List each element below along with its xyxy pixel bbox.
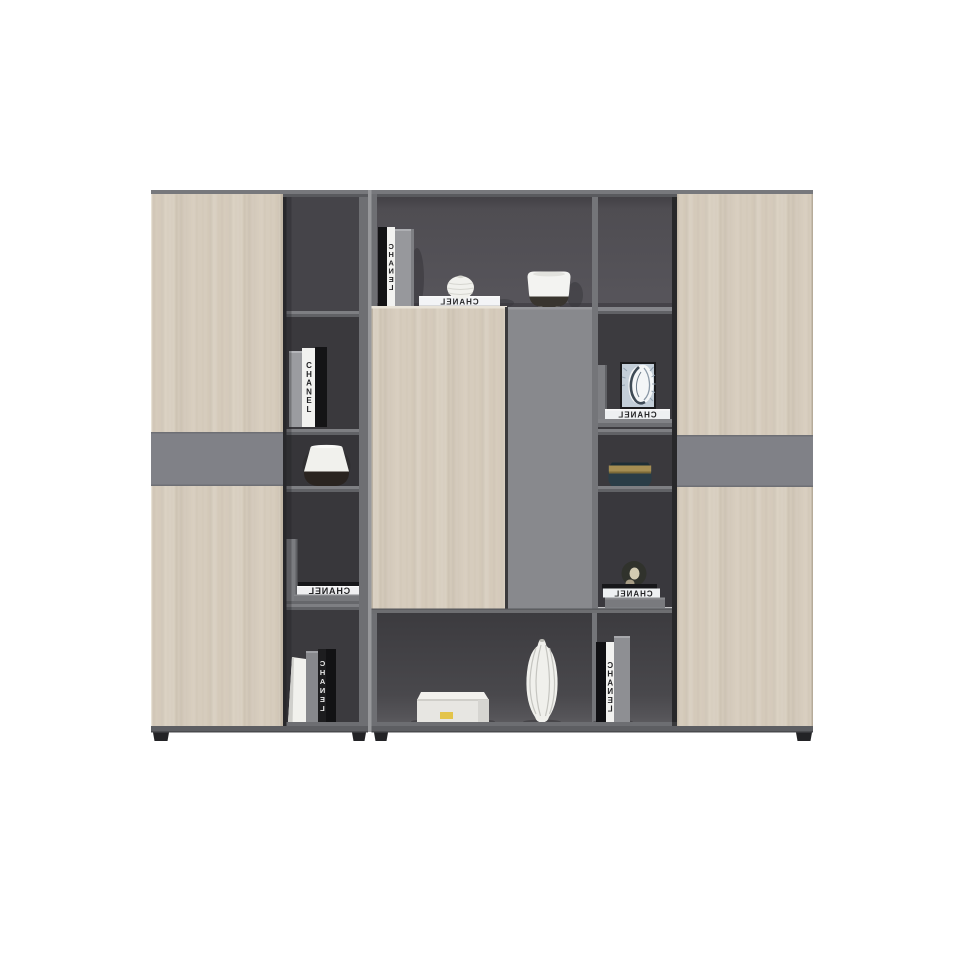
svg-text:CHANEL: CHANEL xyxy=(613,590,652,599)
svg-text:CHANEL: CHANEL xyxy=(607,661,613,714)
svg-text:CHANEL: CHANEL xyxy=(617,411,656,420)
svg-text:CHANEL: CHANEL xyxy=(308,586,350,596)
svg-text:CHANEL: CHANEL xyxy=(306,361,312,414)
